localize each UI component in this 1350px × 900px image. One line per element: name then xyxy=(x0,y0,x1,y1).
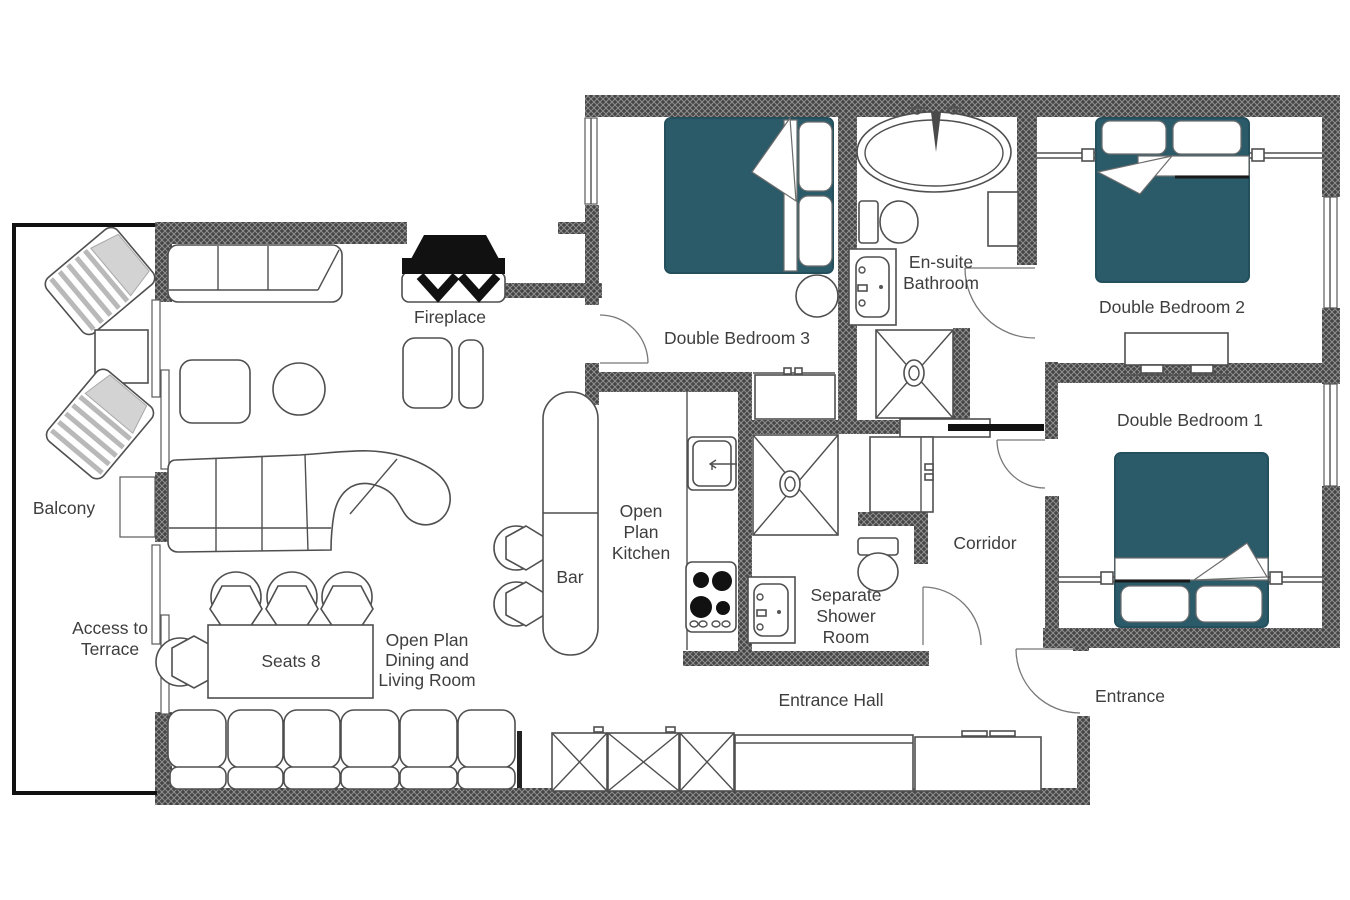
wall-bedroom3-left xyxy=(585,205,599,305)
shower-room-label-2: Shower xyxy=(816,606,876,626)
pillow xyxy=(1196,586,1262,622)
sliding-door xyxy=(900,419,1044,437)
dining-table-label: Seats 8 xyxy=(261,651,320,671)
terrace-access-label-2: Terrace xyxy=(81,639,139,659)
pillow xyxy=(1173,121,1241,154)
shower-room-label-3: Room xyxy=(823,627,870,647)
entrance-label: Entrance xyxy=(1095,686,1165,706)
kitchen-label-3: Kitchen xyxy=(612,543,670,563)
ensuite-cabinet xyxy=(988,192,1018,246)
pillow xyxy=(799,122,832,191)
hall-divider xyxy=(517,731,522,788)
dining-set: Seats 8 xyxy=(156,572,373,698)
ensuite-toilet xyxy=(859,201,918,243)
living-label-1: Open Plan xyxy=(386,630,469,650)
wall-entrance-hinge xyxy=(1073,640,1089,651)
ensuite-label-1: En-suite xyxy=(909,252,973,272)
shower-room-sink xyxy=(748,577,795,643)
sofa-curved xyxy=(168,451,450,552)
terrace-access-label-1: Access to xyxy=(72,618,148,638)
wall-right-1 xyxy=(1322,95,1340,197)
bedroom2-label: Double Bedroom 2 xyxy=(1099,297,1245,317)
fireplace-mantel xyxy=(402,258,505,274)
shower-room-toilet xyxy=(858,538,898,591)
bedside-table-3 xyxy=(796,275,838,317)
pillow xyxy=(799,196,832,266)
balcony-label: Balcony xyxy=(33,498,96,518)
hall-wardrobe-1 xyxy=(552,727,607,791)
entrance-hall-label: Entrance Hall xyxy=(778,690,883,710)
sofa-bottom-row xyxy=(168,710,515,789)
window-living-1b xyxy=(161,370,169,469)
wall-right-3 xyxy=(1322,486,1340,648)
bar-counter xyxy=(543,392,598,655)
bed-double-3 xyxy=(665,118,833,273)
bedroom1-label: Double Bedroom 1 xyxy=(1117,410,1263,430)
armchair-right xyxy=(403,338,452,408)
wall-corridor-stub xyxy=(1045,362,1058,439)
wall-entrance-stub xyxy=(1077,716,1090,790)
living-room-furniture: Seats 8 Bar xyxy=(156,235,598,789)
living-label-3: Living Room xyxy=(378,670,475,690)
bar-label: Bar xyxy=(556,567,583,587)
hall-cabinet-long xyxy=(735,735,913,791)
kitchen-label-2: Plan xyxy=(623,522,658,542)
corridor-label: Corridor xyxy=(953,533,1016,553)
entrance-door xyxy=(1016,649,1080,713)
ensuite-shower xyxy=(876,330,953,418)
ensuite-bathroom: En-suite Bathroom xyxy=(849,106,1035,418)
bar-area: Bar xyxy=(494,392,598,655)
corridor: Corridor xyxy=(870,419,1044,553)
wall-bedroom1-left xyxy=(1045,496,1059,630)
bedroom1-door xyxy=(997,440,1045,488)
floor-plan: Seats 8 Bar xyxy=(0,0,1350,900)
shower-tray xyxy=(753,435,838,535)
kitchen-sink xyxy=(688,437,737,490)
bedroom3-door xyxy=(600,315,648,363)
wall-living-top xyxy=(155,222,407,244)
bedroom2: Double Bedroom 2 xyxy=(1037,118,1322,375)
shower-room-label-1: Separate xyxy=(810,585,881,605)
hall-wardrobe-3 xyxy=(680,733,734,791)
ensuite-sink xyxy=(849,249,896,325)
wall-stub-top xyxy=(558,222,588,234)
entrance-hall: Entrance Hall Entrance xyxy=(552,649,1165,791)
pillow xyxy=(1102,121,1166,154)
wall-top xyxy=(585,95,1340,117)
ensuite-label-2: Bathroom xyxy=(903,273,979,293)
bed-double-2 xyxy=(1096,118,1249,282)
wall-ensuite-shower xyxy=(953,328,970,420)
kitchen-label-1: Open xyxy=(620,501,663,521)
side-table-round xyxy=(273,363,325,415)
bathtub xyxy=(857,106,1011,192)
wall-kitchen-top xyxy=(585,372,752,392)
bedroom3-label: Double Bedroom 3 xyxy=(664,328,810,348)
fireplace xyxy=(402,235,505,302)
kitchen-hob xyxy=(686,562,736,632)
fireplace-hood xyxy=(411,235,499,259)
sofa-top xyxy=(168,245,342,302)
wall-shower-room-bottom xyxy=(683,651,929,666)
shower-room-door xyxy=(923,587,981,645)
pillow xyxy=(1121,586,1189,622)
hall-wardrobe-2 xyxy=(608,727,679,791)
armchair-right-arm xyxy=(459,340,483,408)
window-living-2a xyxy=(152,545,160,644)
kitchen xyxy=(686,388,737,650)
floor-plan-drawing: Seats 8 Bar xyxy=(0,0,1350,900)
fireplace-label: Fireplace xyxy=(414,307,486,327)
corridor-wardrobe xyxy=(870,437,933,512)
planter-box xyxy=(120,477,155,537)
bedroom3-closet xyxy=(753,368,835,419)
wall-shower-room-top xyxy=(750,420,900,434)
bed-double-1 xyxy=(1115,453,1268,627)
separate-shower-room: Separate Shower Room xyxy=(748,435,981,647)
lounge-chair-1 xyxy=(42,224,159,338)
hall-cabinet-right xyxy=(915,731,1041,791)
living-label-2: Dining and xyxy=(385,650,469,670)
armchair-left xyxy=(180,360,250,423)
wall-ensuite-right xyxy=(1017,117,1037,265)
window-living-1a xyxy=(152,300,160,397)
wall-shower-room-right xyxy=(914,512,928,564)
